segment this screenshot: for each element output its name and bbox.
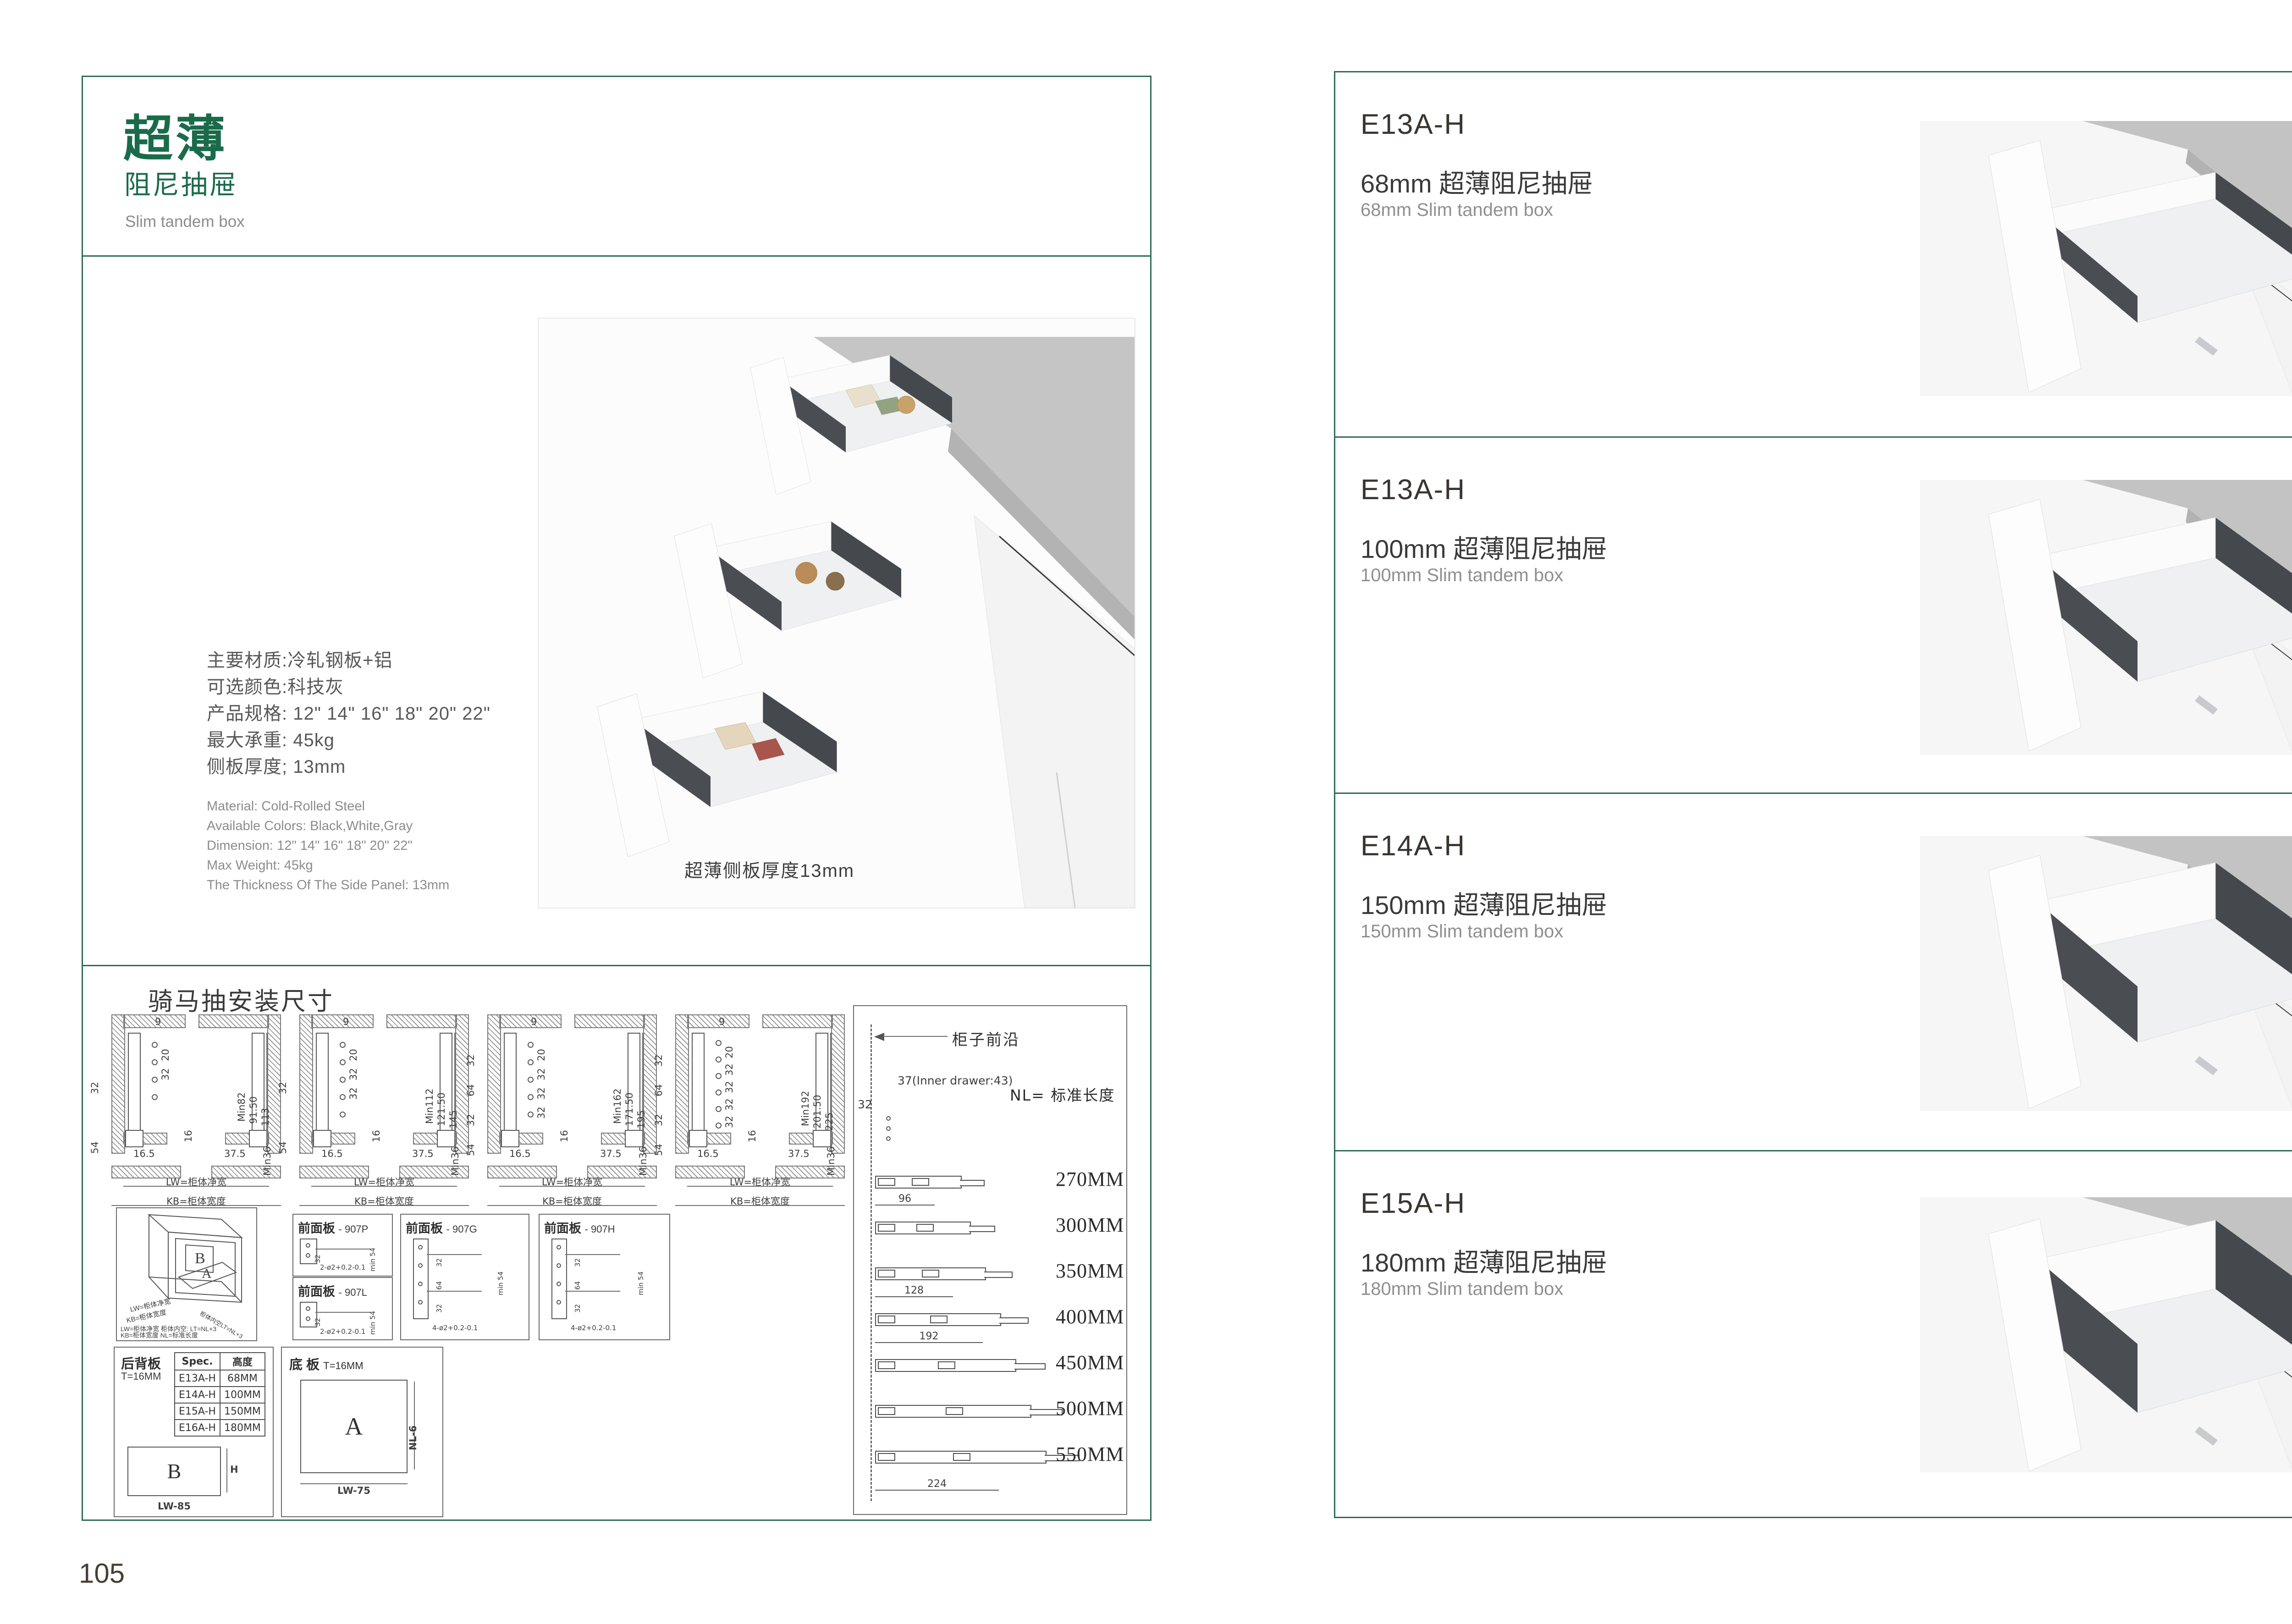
dim-label: Min112 [424, 1089, 435, 1124]
spec-line: Max Weight: 45kg [207, 856, 449, 875]
table-row: E13A-H68MM [175, 1370, 265, 1387]
page-number-left: 105 [79, 1558, 125, 1589]
dim-label: Min82 [236, 1092, 247, 1122]
dim-label: 9 [155, 1016, 161, 1027]
dim-label: 16 [183, 1130, 194, 1142]
product-photo [1920, 121, 2292, 396]
front-edge-line [871, 1024, 872, 1501]
dim-label: 37.5 [224, 1148, 246, 1159]
length-label: 350MM [1056, 1259, 1124, 1283]
front-panel-907l: 前面板 - 907L 32 min 54 2-ø2+0.2-0.1 [292, 1277, 393, 1340]
dim-label: 37.5 [788, 1148, 810, 1159]
dim-label: 64 [653, 1084, 664, 1096]
product-section-4: E15A-H 180mm 超薄阻尼抽屉 180mm Slim tandem bo… [1334, 1150, 2292, 1518]
panel-title: 前面板 [544, 1222, 581, 1235]
dim-label: LW=柜体净宽 [487, 1175, 657, 1189]
dim-label: 32 [653, 1114, 664, 1126]
product-title-en: 150mm Slim tandem box [1361, 921, 1563, 942]
cross-section-100: 9 20 32 32 16 32 54 Min112 121.50 145 16… [299, 1014, 469, 1211]
dim-label: min 54 [496, 1272, 505, 1295]
specs-chinese: 主要材质:冷轧钢板+铝 可选颜色:科技灰 产品规格: 12" 14" 16" 1… [207, 647, 490, 780]
photo-caption: 超薄侧板厚度13mm [684, 856, 854, 882]
dim-label: Min192 [800, 1091, 811, 1126]
dim-label: 20 [724, 1046, 735, 1058]
specs-english: Material: Cold-Rolled Steel Available Co… [207, 797, 449, 895]
front-panel-907h: 前面板 - 907H 32 64 32 min 54 4-ø2+0.2-0.1 [539, 1214, 670, 1340]
product-section-3: E14A-H 150mm 超薄阻尼抽屉 150mm Slim tandem bo… [1334, 793, 2292, 1154]
cross-section-180: 9 20 32 32 32 32 16 32 64 32 54 Min192 2… [675, 1014, 845, 1211]
isometric-cabinet-drawing: B A LW=柜体净宽 KB=柜体宽度 柜体内空LT=NL+3 LW=柜体净宽 … [117, 1208, 254, 1338]
dim-label: 201.50 [812, 1095, 823, 1129]
arrow-left-icon [874, 1033, 884, 1041]
dim-label: 32 [465, 1054, 476, 1067]
thickness-label: T=16MM [121, 1371, 161, 1382]
dim-label: 32 [724, 1081, 735, 1093]
spec-line: The Thickness Of The Side Panel: 13mm [207, 875, 449, 895]
panel-code: - 907L [339, 1287, 367, 1298]
length-label: 400MM [1056, 1305, 1124, 1328]
product-photo [1920, 480, 2292, 755]
product-model: E13A-H [1361, 473, 1466, 506]
dim-label: 20 [160, 1049, 171, 1061]
catalog-spread: 超薄 阻尼抽屉 Slim tandem box 主要材质:冷轧钢板+铝 可选颜色… [0, 0, 2292, 1624]
left-title-box: 超薄 阻尼抽屉 Slim tandem box [82, 76, 1152, 258]
cross-section-150: 9 20 32 32 32 16 32 64 32 54 Min162 171.… [487, 1014, 657, 1211]
hole-note: 4-ø2+0.2-0.1 [432, 1324, 478, 1332]
dim-label: 195 [636, 1110, 647, 1129]
dim-label: 54 [277, 1141, 288, 1154]
dim-label: 32 [277, 1082, 288, 1094]
dim-label: min 54 [369, 1311, 377, 1335]
cross-section-68: 9 20 32 16 32 54 Min82 91.50 113 16.5 37… [111, 1014, 281, 1211]
dim-label: Min36 [262, 1146, 273, 1176]
dim-label: 32 [314, 1318, 322, 1327]
panel-code: - 907P [339, 1223, 369, 1235]
dim-label: 32 [573, 1304, 582, 1313]
dim-label: KB=柜体宽度 [487, 1194, 657, 1208]
spec-line: 产品规格: 12" 14" 16" 18" 20" 22" [207, 700, 490, 727]
back-panel-section: 后背板 T=16MM Spec.高度 E13A-H68MM E14A-H100M… [114, 1347, 274, 1517]
dim-label: min 54 [637, 1272, 645, 1295]
dim-label: 16.5 [133, 1148, 155, 1159]
spec-line: 侧板厚度; 13mm [207, 754, 490, 780]
board-a-label: A [202, 1266, 212, 1281]
dim-label: 171.50 [624, 1093, 635, 1126]
dim-label: Min36 [450, 1146, 461, 1176]
dim-label: 91.50 [248, 1096, 259, 1124]
pitch-label: 32 [858, 1098, 872, 1111]
dim-label: 32 [348, 1068, 359, 1080]
product-title-en: 180mm Slim tandem box [1361, 1279, 1563, 1299]
dim-label: 32 [89, 1082, 100, 1094]
dim-224: 224 [875, 1478, 999, 1491]
dim-label: 32 [573, 1258, 582, 1267]
dim-label: 20 [348, 1049, 359, 1061]
product-photo [1920, 1197, 2292, 1472]
dim-label: 16.5 [321, 1148, 343, 1159]
left-drawings-box: 骑马抽安装尺寸 9 20 32 16 32 54 Min82 91.50 113… [82, 965, 1152, 1521]
dim-label: Min162 [612, 1089, 623, 1124]
dim-label: 16.5 [697, 1148, 719, 1159]
panel-code: - 907H [585, 1223, 615, 1235]
dim-label: 32 [724, 1116, 735, 1128]
product-section-1: E13A-H 68mm 超薄阻尼抽屉 68mm Slim tandem box [1334, 71, 2292, 440]
dim-label: 32 [536, 1068, 547, 1080]
length-label: 450MM [1056, 1351, 1124, 1374]
dim-label: LW=柜体净宽 [299, 1175, 469, 1189]
front-panel-907p: 前面板 - 907P 32 min 54 2-ø2+0.2-0.1 [292, 1214, 393, 1277]
hole-note: 2-ø2+0.2-0.1 [320, 1263, 365, 1272]
product-title-cn: 150mm 超薄阻尼抽屉 [1361, 885, 1607, 922]
dim-label: 32 [348, 1087, 359, 1100]
spec-line: Dimension: 12" 14" 16" 18" 20" 22" [207, 836, 449, 856]
page-subtitle-en: Slim tandem box [125, 213, 245, 231]
length-label: 270MM [1056, 1167, 1124, 1191]
spec-line: 最大承重: 45kg [207, 727, 490, 754]
page-title: 超薄 [123, 99, 228, 171]
board-b-label: B [195, 1250, 205, 1267]
dim-label: KB=柜体宽度 [299, 1194, 469, 1208]
dim-label: 16 [559, 1130, 570, 1142]
panel-title: 前面板 [298, 1222, 335, 1235]
dim-label: LW-85 [127, 1501, 221, 1512]
product-title-en: 100mm Slim tandem box [1361, 565, 1563, 586]
dim-label: 32 [724, 1063, 735, 1076]
section-title: 底 板 T=16MM [289, 1354, 364, 1373]
dim-label: 9 [719, 1016, 725, 1027]
front-panel-907g: 前面板 - 907G 32 64 32 min 54 4-ø2+0.2-0.1 [400, 1214, 529, 1340]
product-title-cn: 180mm 超薄阻尼抽屉 [1361, 1242, 1607, 1279]
dim-label: 37.5 [412, 1148, 434, 1159]
legend-line: KB=柜体宽度 NL=标准长度 [121, 1332, 198, 1338]
dim-label: 54 [465, 1144, 476, 1156]
edge-label: 柜体内空LT=NL+3 [199, 1310, 244, 1338]
table-row: E15A-H150MM [175, 1403, 265, 1420]
panel-code: - 907G [446, 1223, 477, 1235]
front-edge-label: 柜子前沿 [952, 1027, 1020, 1050]
hole-note: 4-ø2+0.2-0.1 [571, 1324, 616, 1332]
product-model: E13A-H [1361, 108, 1466, 141]
spec-line: Available Colors: Black,White,Gray [207, 816, 449, 836]
length-label: 500MM [1056, 1397, 1124, 1420]
left-content-box: 主要材质:冷轧钢板+铝 可选颜色:科技灰 产品规格: 12" 14" 16" 1… [82, 255, 1152, 967]
product-title-cn: 68mm 超薄阻尼抽屉 [1361, 163, 1593, 200]
dim-label: 16 [747, 1130, 758, 1142]
product-title-en: 68mm Slim tandem box [1361, 200, 1553, 220]
dim-label: LW=柜体净宽 [111, 1175, 281, 1189]
table-header: 高度 [220, 1353, 265, 1370]
dim-label: 9 [343, 1016, 349, 1027]
dim-label: 32 [160, 1068, 171, 1080]
hole-note: 2-ø2+0.2-0.1 [320, 1327, 365, 1336]
nl-equation: NL= 标准长度 [1010, 1083, 1115, 1105]
dim-label: 32 [435, 1258, 443, 1267]
dim-label: 16.5 [509, 1148, 531, 1159]
dim-label: min 54 [369, 1248, 377, 1272]
dim-label: 113 [260, 1108, 271, 1126]
product-photo [1920, 836, 2292, 1111]
dim-label: 32 [536, 1107, 547, 1119]
length-label: 550MM [1056, 1442, 1124, 1466]
table-header: Spec. [175, 1353, 220, 1370]
product-section-2: E13A-H 100mm 超薄阻尼抽屉 100mm Slim tandem bo… [1334, 436, 2292, 797]
dim-label: 32 [465, 1114, 476, 1126]
dim-label: LW=柜体净宽 [675, 1175, 845, 1189]
dim-label: 9 [531, 1016, 537, 1027]
dim-label: KB=柜体宽度 [675, 1194, 845, 1208]
table-row: E16A-H180MM [175, 1420, 265, 1436]
dim-label: 145 [448, 1110, 459, 1129]
dim-label: 225 [824, 1112, 835, 1131]
spec-line: 主要材质:冷轧钢板+铝 [207, 647, 490, 674]
dim-label: Min36 [638, 1146, 649, 1176]
panel-title: 前面板 [298, 1285, 335, 1299]
drawer-stack-illustration [539, 319, 1135, 908]
dim-label: 64 [435, 1281, 443, 1290]
section-title: 后背板 [121, 1353, 161, 1372]
dim-label: 64 [465, 1084, 476, 1096]
spec-table: Spec.高度 E13A-H68MM E14A-H100MM E15A-H150… [174, 1352, 265, 1437]
dim-label: 64 [573, 1281, 582, 1290]
length-label: 300MM [1056, 1213, 1124, 1237]
page-subtitle: 阻尼抽屉 [124, 163, 238, 202]
dim-label: 20 [536, 1049, 547, 1061]
product-model: E14A-H [1361, 830, 1466, 862]
dim-label: NL-6 [408, 1426, 419, 1450]
panel-title: 前面板 [406, 1222, 443, 1235]
dim-128: 128 [875, 1285, 953, 1297]
dim-label: 32 [653, 1054, 664, 1067]
nl-lengths-panel: 柜子前沿 37(Inner drawer:43) 32 NL= 标准长度 270… [853, 1005, 1127, 1515]
dim-label: 37.5 [600, 1148, 622, 1159]
dim-label: 32 [314, 1255, 322, 1263]
product-model: E15A-H [1361, 1187, 1466, 1220]
base-panel-section: 底 板 T=16MM A NL-6 LW-75 [281, 1347, 443, 1517]
dim-label: Min36 [826, 1146, 837, 1176]
dim-label: 54 [89, 1141, 100, 1154]
dim-96: 96 [875, 1193, 935, 1206]
base-panel-rect: A [300, 1380, 408, 1473]
table-row: E14A-H100MM [175, 1387, 265, 1403]
left-product-photo: 超薄侧板厚度13mm [538, 318, 1135, 908]
inner-drawer-note: 37(Inner drawer:43) [898, 1074, 1013, 1087]
dim-192: 192 [875, 1331, 983, 1343]
dim-label: 32 [724, 1098, 735, 1111]
dim-label: 32 [536, 1087, 547, 1100]
dim-label: 16 [371, 1130, 382, 1142]
spec-line: Material: Cold-Rolled Steel [207, 797, 449, 816]
dim-label: H [230, 1464, 238, 1475]
dim-label: 121.50 [436, 1093, 447, 1126]
dim-label: LW-75 [300, 1485, 408, 1496]
dim-label: KB=柜体宽度 [111, 1194, 281, 1208]
back-panel-rect: B [127, 1447, 221, 1496]
dim-label: 32 [435, 1304, 443, 1313]
spec-line: 可选颜色:科技灰 [207, 674, 490, 700]
drawings-title: 骑马抽安装尺寸 [148, 981, 334, 1017]
isometric-cabinet-panel: B A LW=柜体净宽 KB=柜体宽度 柜体内空LT=NL+3 LW=柜体净宽 … [116, 1207, 257, 1341]
dim-label: 54 [653, 1144, 664, 1156]
product-title-cn: 100mm 超薄阻尼抽屉 [1361, 528, 1607, 566]
